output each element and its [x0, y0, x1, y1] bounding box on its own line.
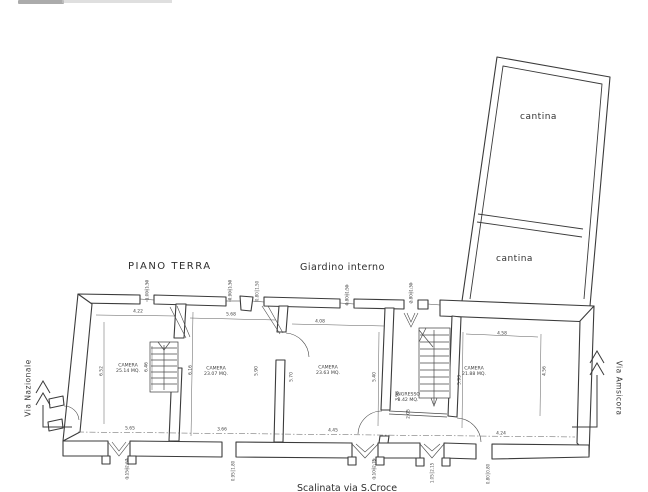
- room-area: 25.14 MQ.: [116, 368, 140, 374]
- annex-inner-wall: [470, 66, 602, 299]
- stair-room1: [150, 342, 178, 392]
- garden-label: Giardino interno: [300, 262, 385, 273]
- annex-room-label-lower: cantina: [496, 254, 533, 264]
- annex-building: [462, 57, 610, 306]
- annex-outer-wall: [462, 57, 610, 306]
- annex-divider-wall: [477, 222, 582, 237]
- floor-plan-page: PIANO TERRA Giardino interno cantina can…: [0, 0, 648, 492]
- room-label-camera-4: CAMERA 21.88 MQ.: [462, 365, 486, 377]
- room-label-camera-3: CAMERA 23.63 MQ.: [316, 364, 340, 376]
- room-label-ingresso: INGRESSO 8.42 MQ.: [396, 391, 420, 403]
- double-door-mark: [420, 444, 444, 458]
- door-swing-arc: [457, 418, 481, 442]
- street-label-bottom: Scalinata via S.Croce: [297, 483, 397, 492]
- double-door-mark: [108, 442, 130, 456]
- main-building-walls: [48, 294, 594, 466]
- door-swing-arc: [358, 411, 382, 434]
- partition-wall: [174, 304, 186, 338]
- plan-title: PIANO TERRA: [128, 261, 212, 272]
- room-label-camera-2: CAMERA 23.07 MQ.: [204, 365, 228, 377]
- room-area: 8.42 MQ.: [396, 397, 420, 403]
- entry-door-mark: [404, 313, 418, 327]
- door-swings: [64, 306, 481, 458]
- double-door-mark: [352, 444, 378, 458]
- room-area: 23.07 MQ.: [204, 371, 228, 377]
- ingresso-partition: [389, 411, 447, 417]
- annex-divider-wall: [478, 214, 583, 229]
- room-area: 23.63 MQ.: [316, 370, 340, 376]
- room-label-camera-1: CAMERA 25.14 MQ.: [116, 362, 140, 374]
- room-area: 21.88 MQ.: [462, 371, 486, 377]
- stair-main: [419, 328, 450, 406]
- floor-plan-drawing: [0, 0, 648, 492]
- annex-room-label-upper: cantina: [520, 112, 557, 122]
- street-label-right: Via Amsicora: [615, 361, 624, 416]
- street-label-left: Via Nazionale: [24, 359, 33, 416]
- door-swing-arc: [286, 333, 309, 357]
